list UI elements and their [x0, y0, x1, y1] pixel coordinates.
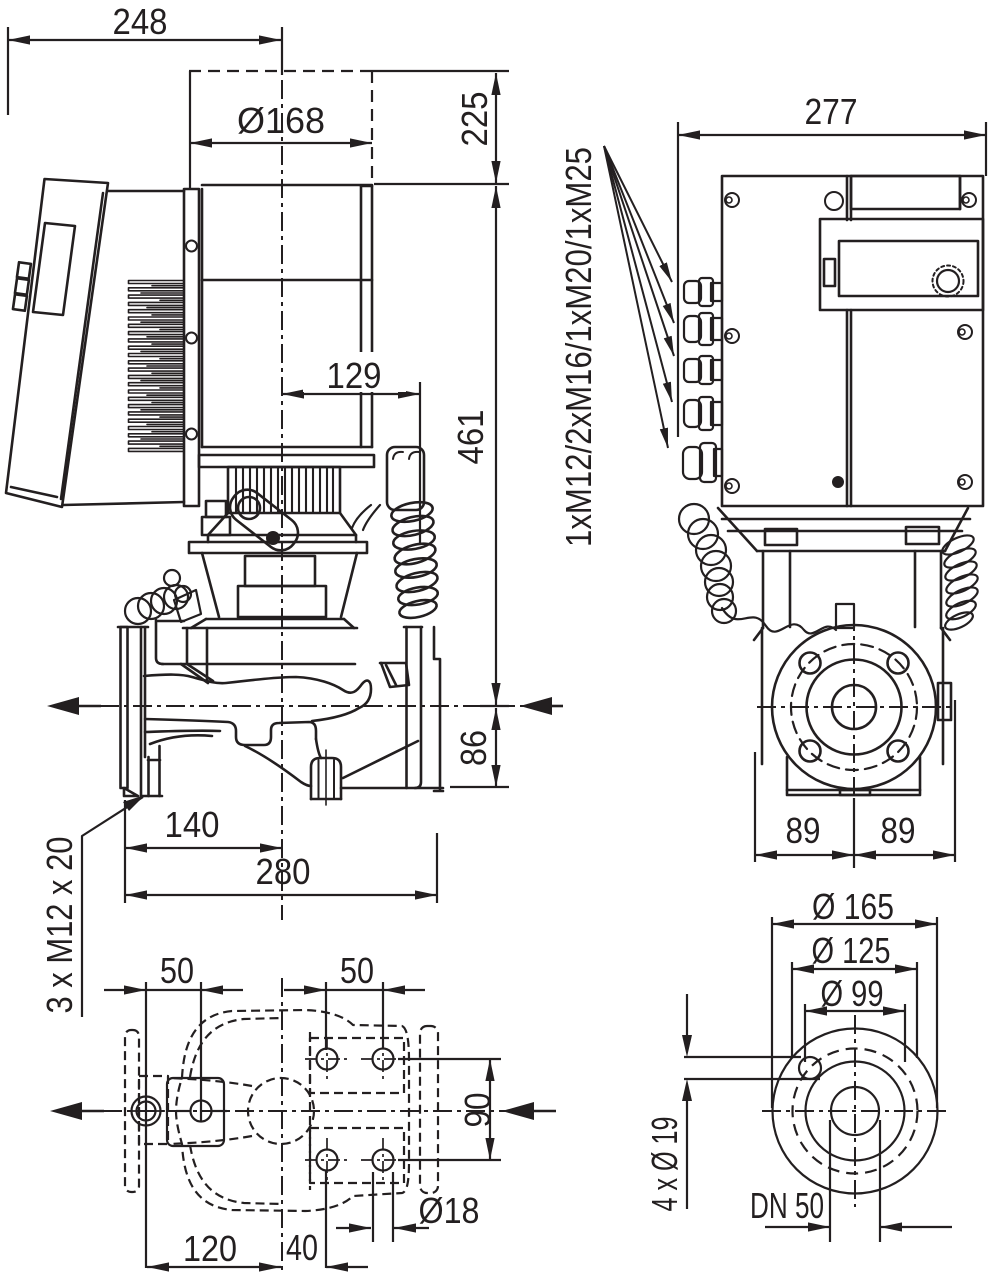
- svg-text:Ø168: Ø168: [237, 100, 325, 141]
- svg-text:90: 90: [457, 1093, 498, 1128]
- svg-text:50: 50: [160, 950, 194, 991]
- svg-text:Ø18: Ø18: [419, 1190, 480, 1231]
- svg-text:50: 50: [340, 950, 374, 991]
- svg-text:89: 89: [881, 810, 916, 851]
- svg-text:120: 120: [183, 1228, 237, 1269]
- svg-text:3 x M12 x 20: 3 x M12 x 20: [39, 837, 80, 1014]
- svg-text:248: 248: [113, 1, 168, 42]
- svg-text:40: 40: [286, 1227, 318, 1268]
- svg-text:4 x Ø 19: 4 x Ø 19: [644, 1117, 685, 1212]
- svg-text:Ø 99: Ø 99: [821, 973, 884, 1014]
- svg-text:Ø 125: Ø 125: [812, 930, 891, 971]
- svg-text:129: 129: [327, 355, 382, 396]
- svg-text:277: 277: [805, 91, 858, 132]
- svg-text:1xM12/2xM16/1xM20/1xM25: 1xM12/2xM16/1xM20/1xM25: [558, 147, 599, 547]
- svg-text:461: 461: [450, 410, 491, 465]
- svg-text:280: 280: [256, 851, 311, 892]
- svg-text:86: 86: [453, 730, 494, 766]
- svg-text:Ø 165: Ø 165: [812, 886, 894, 927]
- svg-text:140: 140: [165, 804, 220, 845]
- svg-text:DN 50: DN 50: [750, 1185, 824, 1226]
- svg-text:225: 225: [454, 92, 495, 147]
- svg-text:89: 89: [786, 810, 821, 851]
